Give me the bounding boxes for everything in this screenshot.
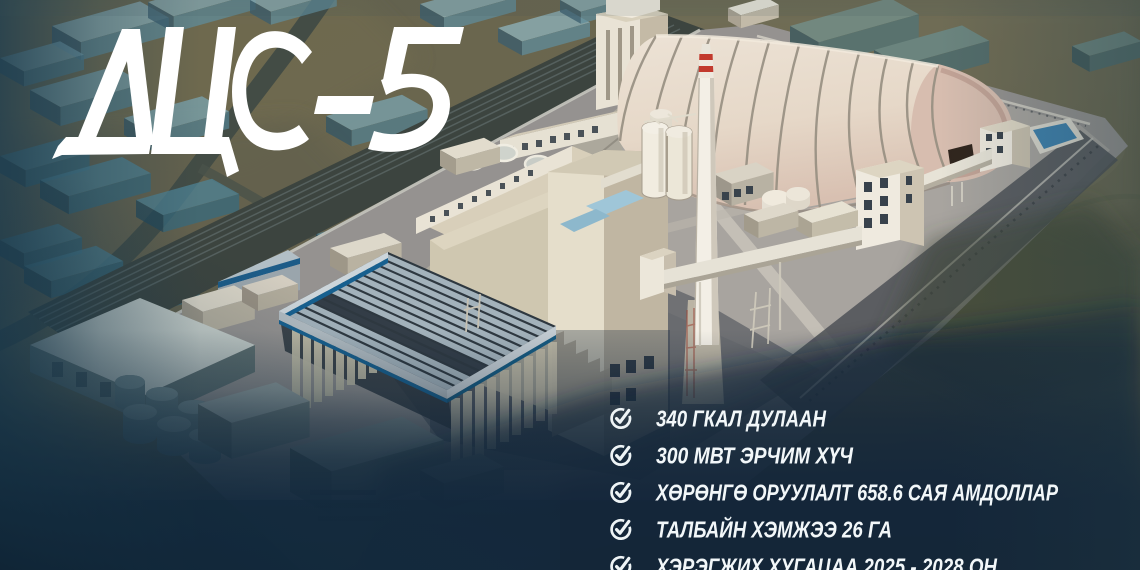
svg-text:ХӨРӨНГӨ ОРУУЛАЛТ 658.6 САЯ АМД: ХӨРӨНГӨ ОРУУЛАЛТ 658.6 САЯ АМДОЛЛАР xyxy=(654,480,1058,506)
svg-text:ТАЛБАЙН ХЭМЖЭЭ 26 ГА: ТАЛБАЙН ХЭМЖЭЭ 26 ГА xyxy=(656,515,892,543)
svg-text:ХЭРЭГЖИХ ХУГАЦАА 2025 - 2028 О: ХЭРЭГЖИХ ХУГАЦАА 2025 - 2028 ОН xyxy=(654,554,997,570)
svg-text:300 МВТ ЭРЧИМ ХҮЧ: 300 МВТ ЭРЧИМ ХҮЧ xyxy=(656,443,854,469)
svg-text:340 ГКАЛ ДУЛААН: 340 ГКАЛ ДУЛААН xyxy=(656,406,826,432)
